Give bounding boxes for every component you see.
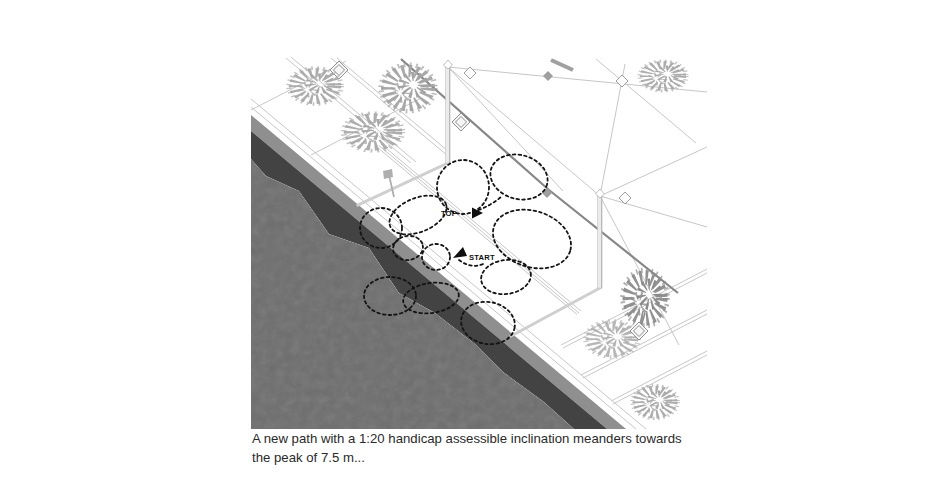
diamond-filled-icon [542,188,552,198]
site-plan-drawing: TOP START [251,55,707,429]
top-label: TOP [441,209,457,218]
start-arrow-icon [453,247,467,258]
site-plan-figure: TOP START [251,55,707,429]
page: TOP START A new path with a 1:20 handica… [0,0,950,500]
catenary-wires [448,64,707,345]
light-pole-left [444,60,453,163]
figure-caption: A new path with a 1:20 handicap assessib… [252,430,712,467]
tree-icon [633,386,678,419]
hedge-line [401,59,678,293]
diamond-filled-icon [543,71,553,81]
water-area [251,55,707,429]
tree-planter-icon [452,113,470,131]
light-pole-right [596,189,605,288]
tree-icon [289,68,342,104]
tree-icon [586,321,639,357]
caption-line-1: A new path with a 1:20 handicap assessib… [252,430,712,449]
wall-dash [551,60,573,70]
tree-icon [623,270,668,326]
start-label: START [469,253,495,262]
tree-icon [344,113,403,151]
caption-line-2: the peak of 7.5 m... [252,449,712,468]
